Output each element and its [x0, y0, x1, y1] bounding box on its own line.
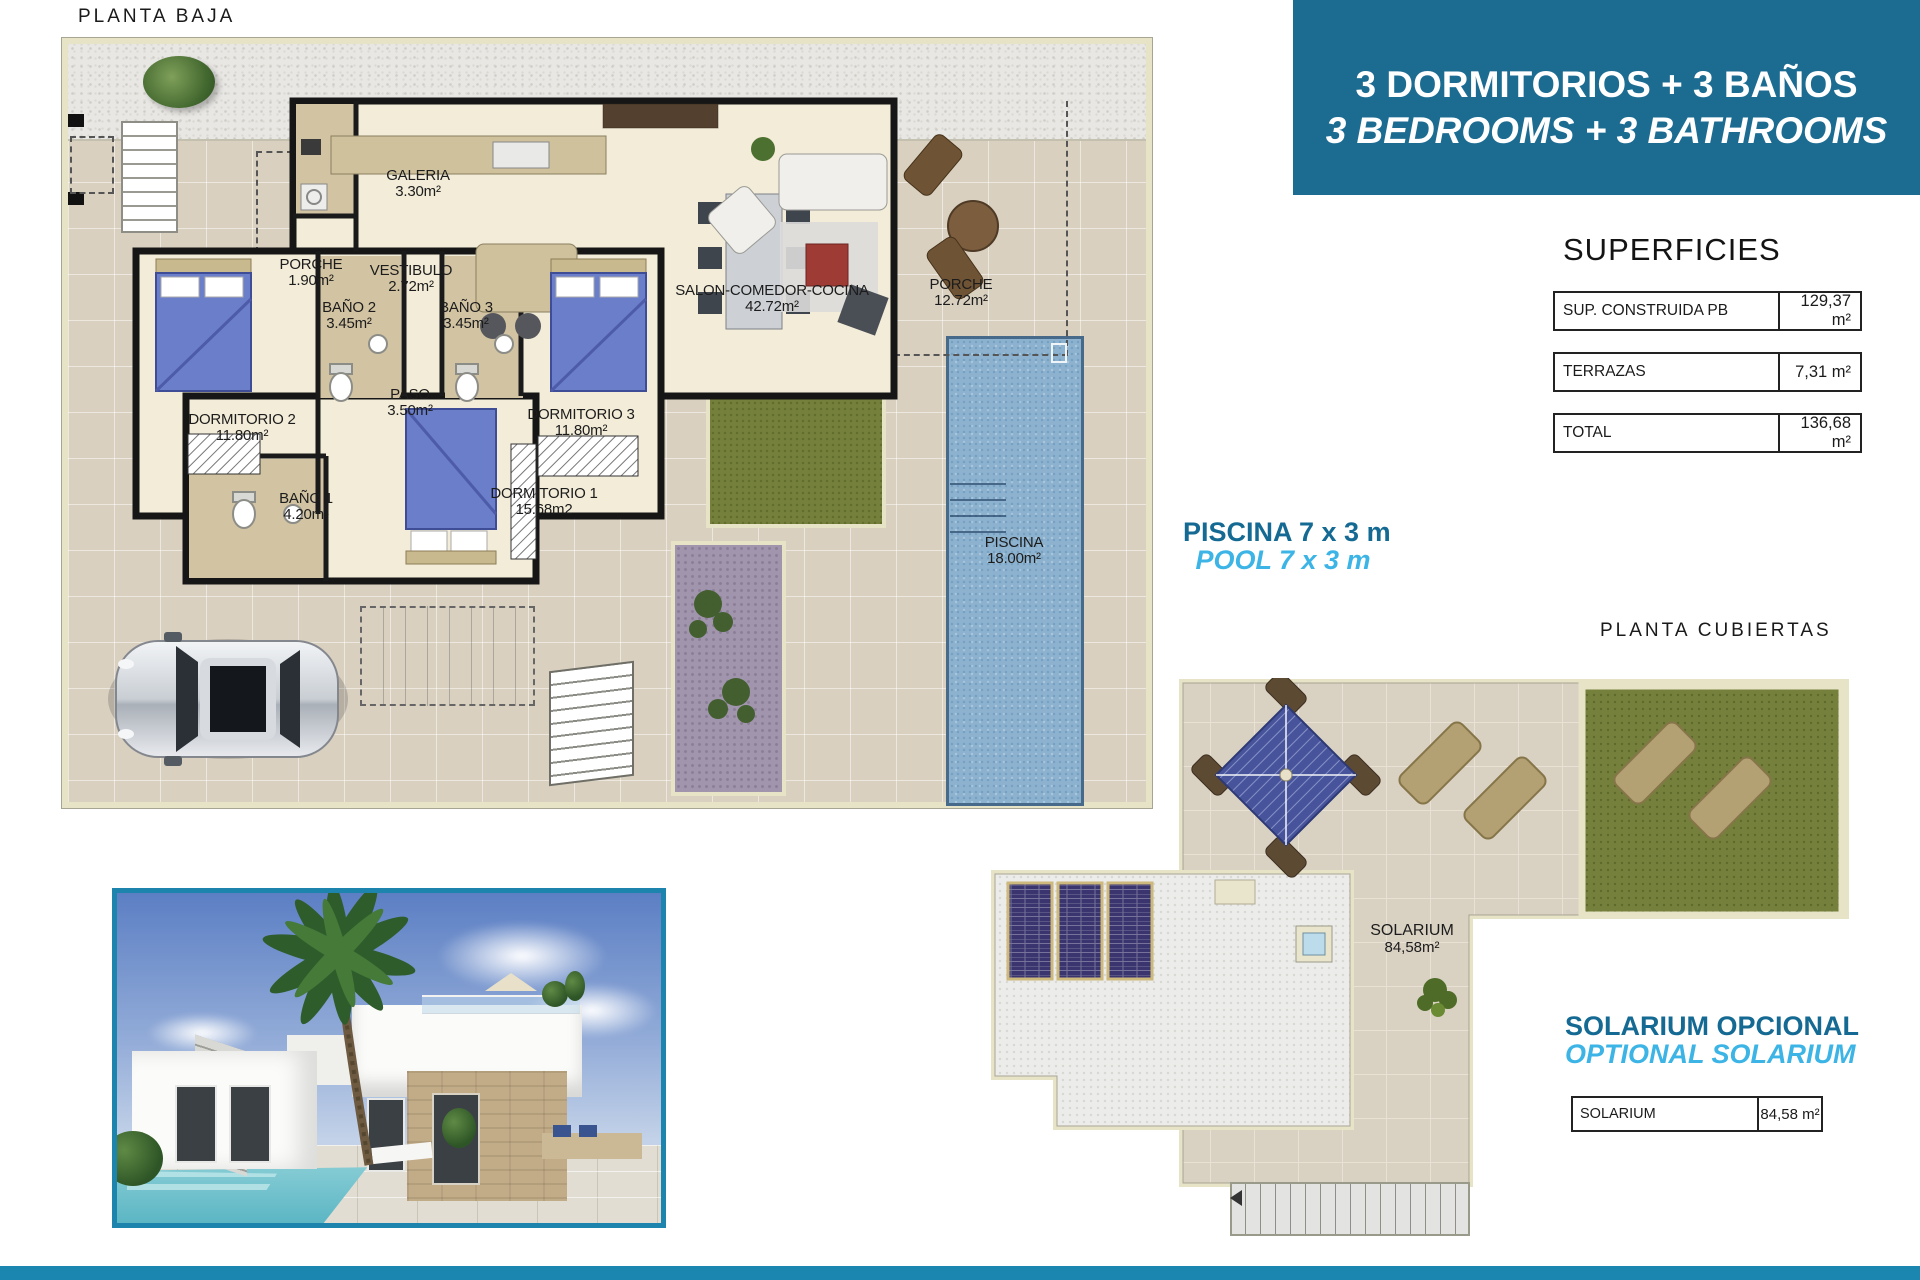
pool-note-en: POOL 7 x 3 m: [1183, 546, 1383, 574]
flyer-page: PLANTA BAJA PLANTA CUBIERTAS 3 DORMITORI…: [0, 0, 1920, 1280]
room-label-vestibulo: VESTIBULO2.72m²: [370, 263, 452, 295]
solarium-table-value: 84,58 m²: [1759, 1106, 1821, 1123]
row-label: TOTAL: [1555, 415, 1780, 451]
solarium-note-en: OPTIONAL SOLARIUM: [1565, 1040, 1823, 1068]
solarium-table: SOLARIUM 84,58 m²: [1571, 1096, 1823, 1132]
room-label-dorm3: DORMITORIO 311.80m²: [527, 407, 634, 439]
room-label-dorm1: DORMITORIO 115.68m2: [490, 486, 597, 518]
banner-line-en: 3 BEDROOMS + 3 BATHROOMS: [1293, 108, 1920, 154]
room-label-salon: SALON-COMEDOR-COCINA42.72m²: [675, 283, 869, 315]
banner-line-es: 3 DORMITORIOS + 3 BAÑOS: [1293, 62, 1920, 108]
row-label: SUP. CONSTRUIDA PB: [1555, 293, 1780, 329]
room-label-bano3: BAÑO 33.45m²: [439, 300, 493, 332]
ground-floor-title: PLANTA BAJA: [78, 6, 235, 28]
pool-note-es: PISCINA 7 x 3 m: [1183, 518, 1383, 546]
superficies-row-construida: SUP. CONSTRUIDA PB 129,37 m²: [1553, 291, 1862, 331]
superficies-row-terrazas: TERRAZAS 7,31 m²: [1553, 352, 1862, 392]
room-label-porche1: PORCHE1.90m²: [280, 257, 343, 289]
superficies-title: SUPERFICIES: [1563, 232, 1781, 268]
bedrooms-banner: 3 DORMITORIOS + 3 BAÑOS 3 BEDROOMS + 3 B…: [1293, 0, 1920, 195]
room-label-bano1: BAÑO 14.20m²: [279, 491, 333, 523]
palm-tree: [117, 893, 661, 1223]
bed-dorm2: [156, 259, 251, 391]
room-label-dorm2: DORMITORIO 211.80m²: [188, 412, 295, 444]
villa-render-photo: [112, 888, 666, 1228]
row-value: 129,37 m²: [1780, 292, 1860, 330]
solar-panels: [1008, 883, 1152, 979]
solarium-note-es: SOLARIUM OPCIONAL: [1565, 1012, 1823, 1040]
room-label-galeria: GALERIA3.30m²: [386, 168, 450, 200]
superficies-row-total: TOTAL 136,68 m²: [1553, 413, 1862, 453]
ground-floor-plan: GALERIA3.30m² PORCHE1.90m² VESTIBULO2.72…: [62, 38, 1152, 808]
row-value: 136,68 m²: [1780, 414, 1860, 452]
room-label-piscina: PISCINA18.00m²: [985, 535, 1044, 567]
car-top-view: [108, 632, 348, 766]
solarium-table-label: SOLARIUM: [1573, 1098, 1759, 1130]
row-label: TERRAZAS: [1555, 354, 1780, 390]
footer-bar: [0, 1266, 1920, 1280]
roof-solarium-label: SOLARIUM84,58m²: [1356, 922, 1468, 956]
roof-plan-title: PLANTA CUBIERTAS: [1600, 620, 1832, 642]
room-label-porche2: PORCHE12.72m²: [930, 277, 993, 309]
row-value: 7,31 m²: [1780, 363, 1860, 382]
room-label-paso: PASO3.50m²: [387, 387, 433, 419]
solarium-optional-note: SOLARIUM OPCIONAL OPTIONAL SOLARIUM: [1565, 1012, 1823, 1068]
bed-dorm1: [406, 409, 496, 564]
bed-dorm3: [551, 259, 646, 391]
room-label-bano2: BAÑO 23.45m²: [322, 300, 376, 332]
pool-size-note: PISCINA 7 x 3 m POOL 7 x 3 m: [1183, 518, 1383, 574]
